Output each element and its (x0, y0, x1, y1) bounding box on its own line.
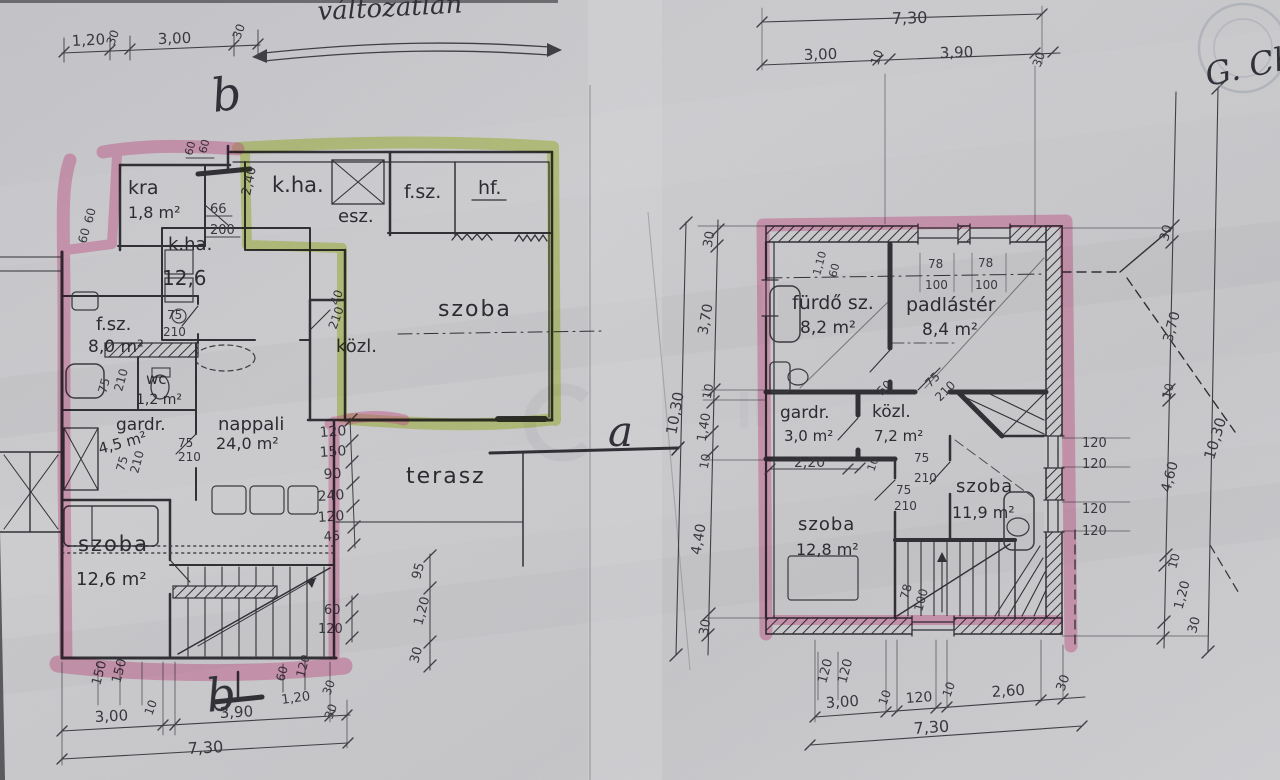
floorplan-drawing: kra 1,8 m² k.ha. 12,6 k.ha. esz. f.sz. h… (0, 0, 1280, 780)
scan-noise-overlay (0, 0, 1280, 780)
scanned-floorplan-page: kra 1,8 m² k.ha. 12,6 k.ha. esz. f.sz. h… (0, 0, 1280, 780)
